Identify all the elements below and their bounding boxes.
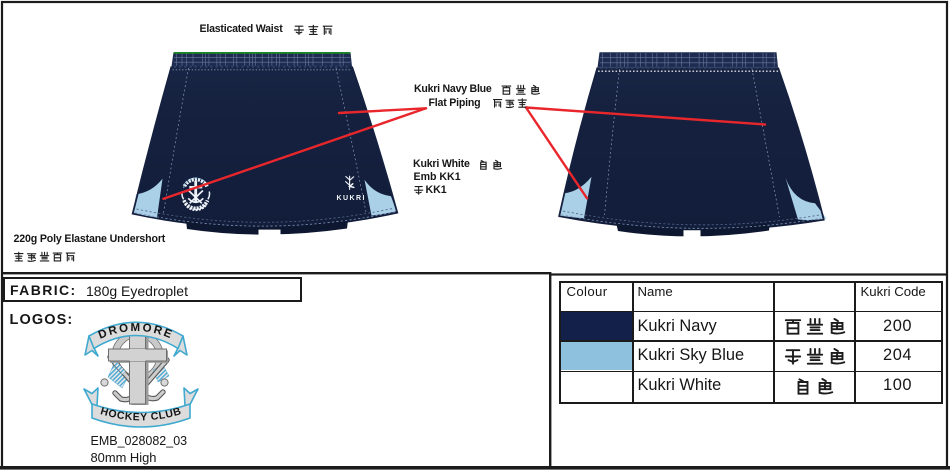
svg-text:KUKRI: KUKRI [337,195,366,202]
